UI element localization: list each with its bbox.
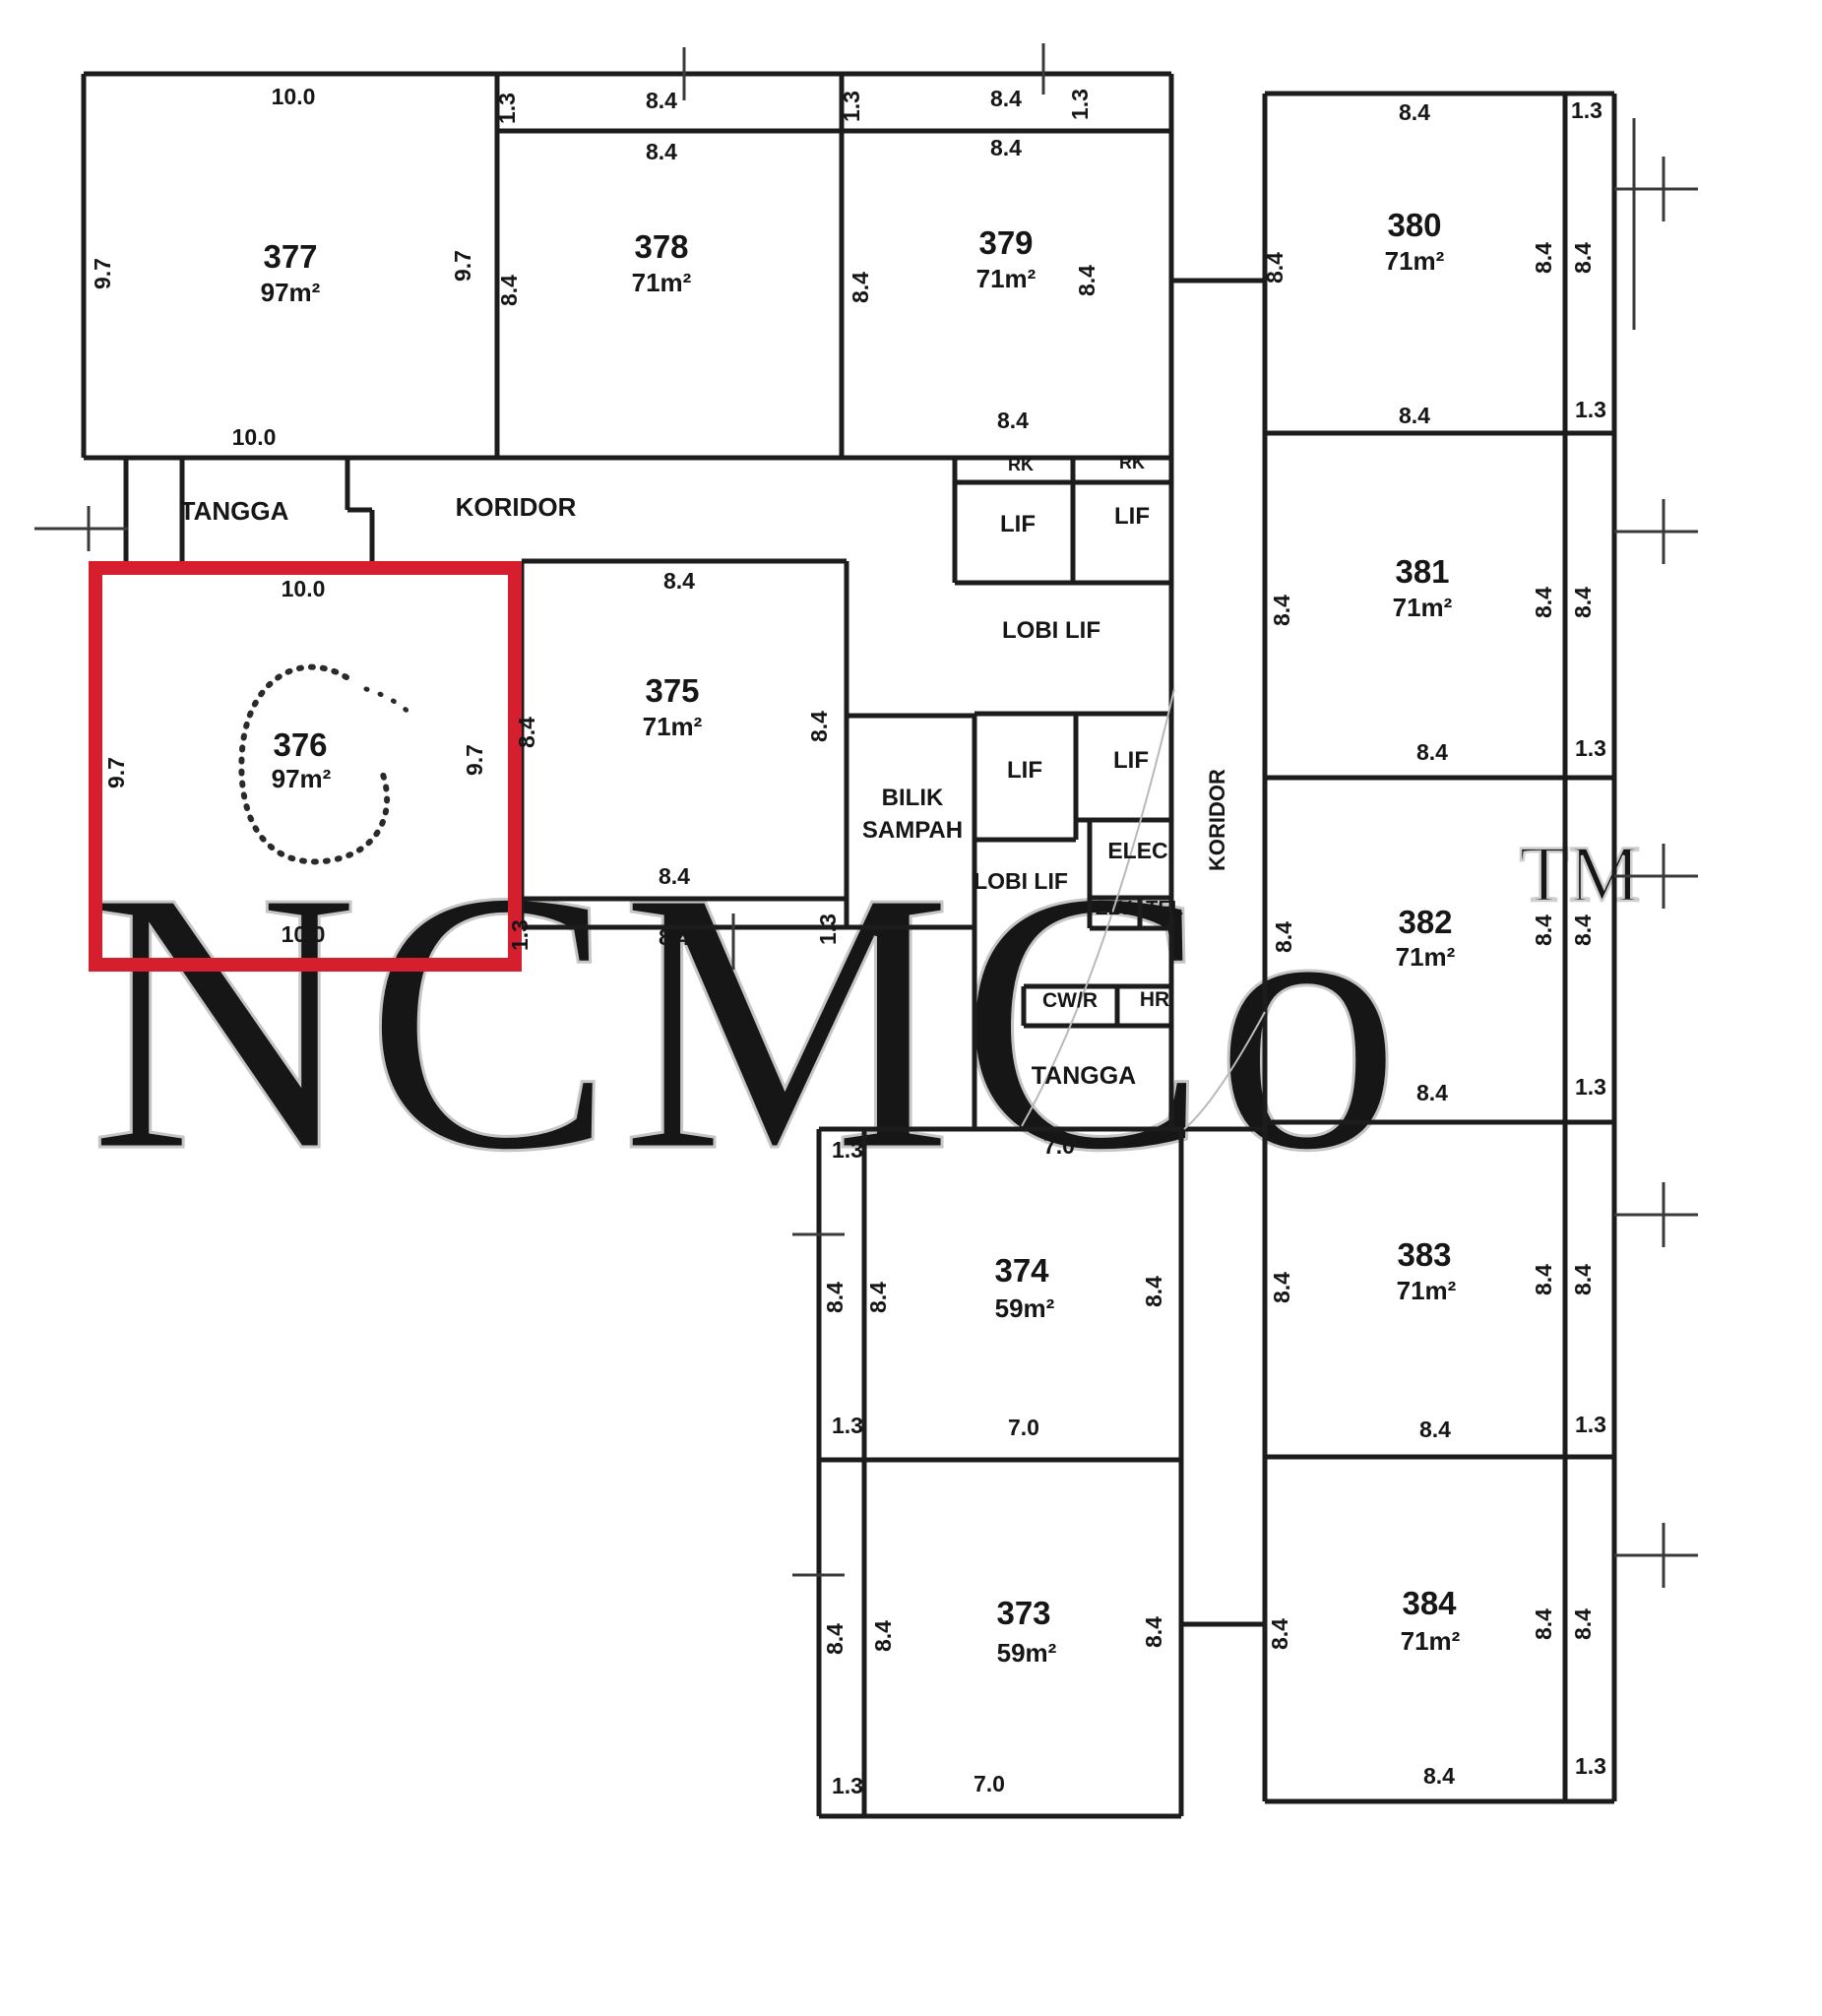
dimension-label: 8.4 (865, 1282, 891, 1313)
service-label: LIF (1000, 511, 1036, 537)
service-label: HR (1140, 988, 1169, 1011)
dimension-label: 1.3 (815, 913, 841, 945)
dimension-label: 8.4 (997, 408, 1029, 433)
dimension-label: 1.3 (494, 93, 520, 124)
room-number-label: 380 (1387, 207, 1441, 243)
dimension-label: 8.4 (1531, 587, 1556, 618)
dimension-label: 10.0 (282, 576, 326, 601)
dimension-label: 8.4 (1271, 921, 1296, 953)
service-label: TEL (1146, 898, 1183, 919)
dimension-label: 9.7 (462, 744, 487, 776)
dimension-label: 8.4 (646, 139, 677, 164)
service-label: LOBI LIF (1002, 617, 1100, 644)
dimension-label: 7.0 (974, 1771, 1005, 1796)
floorplan-scan-page: NCMCo TM 37797m²37871m²37971m²37697m²375… (0, 0, 1822, 2016)
room-area-label: 71m² (1393, 593, 1453, 622)
room-area-label: 71m² (1385, 246, 1445, 276)
room-number-label: 384 (1402, 1585, 1457, 1621)
dimension-label: 8.4 (1399, 403, 1430, 428)
dimension-label: 8.4 (1570, 242, 1596, 274)
service-label: KORIDOR (456, 492, 577, 522)
dimension-label: 8.4 (1531, 914, 1556, 946)
room-area-label: 71m² (976, 264, 1037, 293)
dimension-label: 10.0 (232, 424, 277, 450)
dimension-label: 1.3 (1571, 97, 1602, 123)
dimension-label: 10.0 (272, 84, 316, 109)
service-label: SAMPAH (862, 817, 963, 844)
dimension-label: 8.4 (1416, 739, 1448, 765)
dimension-label: 8.4 (659, 924, 690, 950)
trademark-mark: TM (1520, 829, 1641, 918)
room-number-label: 378 (634, 228, 688, 265)
dimension-label: 1.3 (1575, 735, 1606, 761)
dimension-label: 8.4 (848, 272, 873, 303)
room-number-label: 375 (645, 672, 699, 709)
floorplan-canvas: NCMCo TM 37797m²37871m²37971m²37697m²375… (0, 0, 1822, 2016)
dimension-label: 8.4 (1570, 1264, 1596, 1295)
room-number-label: 381 (1395, 553, 1449, 590)
dimension-label: 8.4 (1269, 595, 1294, 626)
service-label: RK (1008, 455, 1034, 474)
dimension-label: 8.4 (663, 568, 695, 594)
service-label: BILIK (882, 785, 944, 811)
dimension-label: 8.4 (1399, 99, 1430, 125)
room-area-label: 71m² (1397, 1276, 1457, 1305)
room-area-label: 71m² (1396, 942, 1456, 972)
room-number-label: 382 (1398, 904, 1452, 940)
dimension-label: 10.0 (282, 921, 326, 947)
dimension-label: 8.4 (1262, 252, 1288, 283)
room-number-label: 379 (978, 224, 1033, 261)
dimension-label: 8.4 (1416, 1080, 1448, 1105)
dimension-label: 1.3 (839, 91, 864, 122)
dimension-label: 8.4 (1074, 265, 1099, 296)
room-number-label: 376 (273, 726, 327, 763)
dimension-label: 8.4 (514, 717, 539, 748)
watermark-text: NCMCo (89, 814, 1407, 1228)
dimension-label: 8.4 (1419, 1417, 1451, 1442)
dimension-label: 1.3 (1575, 1412, 1606, 1437)
dimension-label: 1.3 (1575, 1074, 1606, 1100)
dimension-label: 8.4 (646, 88, 677, 113)
dimension-label: 8.4 (990, 135, 1022, 160)
room-area-label: 71m² (1401, 1626, 1461, 1656)
dimension-label: 8.4 (990, 86, 1022, 111)
room-number-label: 374 (994, 1252, 1049, 1289)
hand-drawn-circle-dots (366, 689, 413, 717)
dimension-label: 8.4 (1531, 242, 1556, 274)
room-area-label: 71m² (632, 268, 692, 297)
service-label: CW/R (1042, 989, 1098, 1012)
dimension-label: 8.4 (1531, 1264, 1556, 1295)
dimension-label: 1.3 (1067, 89, 1093, 120)
room-number-label: 383 (1397, 1236, 1451, 1273)
dimension-label: 8.4 (870, 1620, 896, 1652)
service-label: TANGGA (180, 496, 289, 526)
dimension-label: 8.4 (1141, 1616, 1166, 1648)
dimension-label: 8.4 (1267, 1618, 1292, 1650)
dimension-label: 8.4 (659, 863, 690, 889)
service-label: LIF (1114, 503, 1150, 530)
dimension-label: 8.4 (1570, 1608, 1596, 1640)
dimension-label: 8.4 (1570, 914, 1596, 946)
room-area-label: 71m² (643, 712, 703, 741)
dimension-label: 8.4 (1570, 587, 1596, 618)
dimension-label: 1.3 (832, 1137, 863, 1163)
room-area-label: 97m² (272, 764, 332, 793)
dimension-label: 1.3 (832, 1413, 863, 1438)
service-label: ELV (1095, 898, 1132, 919)
room-number-label: 373 (996, 1595, 1050, 1631)
room-area-label: 59m² (995, 1293, 1055, 1323)
dimension-label: 8.4 (806, 711, 832, 742)
room-area-label: 97m² (261, 278, 321, 307)
service-label: RK (1119, 453, 1145, 472)
dimension-label: 8.4 (1141, 1276, 1166, 1307)
dimension-label: 8.4 (822, 1282, 848, 1313)
dimension-label: 1.3 (1575, 397, 1606, 422)
dimension-label: 8.4 (1531, 1608, 1556, 1640)
dimension-label: 1.3 (1575, 1753, 1606, 1779)
service-label: TANGGA (1032, 1062, 1136, 1090)
dimension-label: 8.4 (822, 1623, 848, 1655)
dimension-label: 7.0 (1043, 1133, 1075, 1159)
dimension-label: 1.3 (507, 919, 533, 951)
dimension-label: 8.4 (1269, 1272, 1294, 1303)
dimension-label: 9.7 (450, 250, 475, 282)
dimension-label: 9.7 (90, 258, 115, 289)
dimension-label: 8.4 (1423, 1763, 1455, 1789)
dimension-label: 8.4 (496, 275, 522, 306)
service-label: ELEC (1107, 838, 1167, 863)
dimension-label: 9.7 (103, 757, 129, 788)
dimension-label: 7.0 (1008, 1415, 1039, 1440)
service-label: LIF (1007, 757, 1042, 784)
service-label: LOBI LIF (974, 868, 1068, 894)
service-label: LIF (1113, 747, 1149, 774)
dimension-label: 1.3 (832, 1773, 863, 1798)
room-number-label: 377 (263, 238, 317, 275)
service-label: KORIDOR (1205, 769, 1229, 871)
room-area-label: 59m² (997, 1638, 1057, 1668)
